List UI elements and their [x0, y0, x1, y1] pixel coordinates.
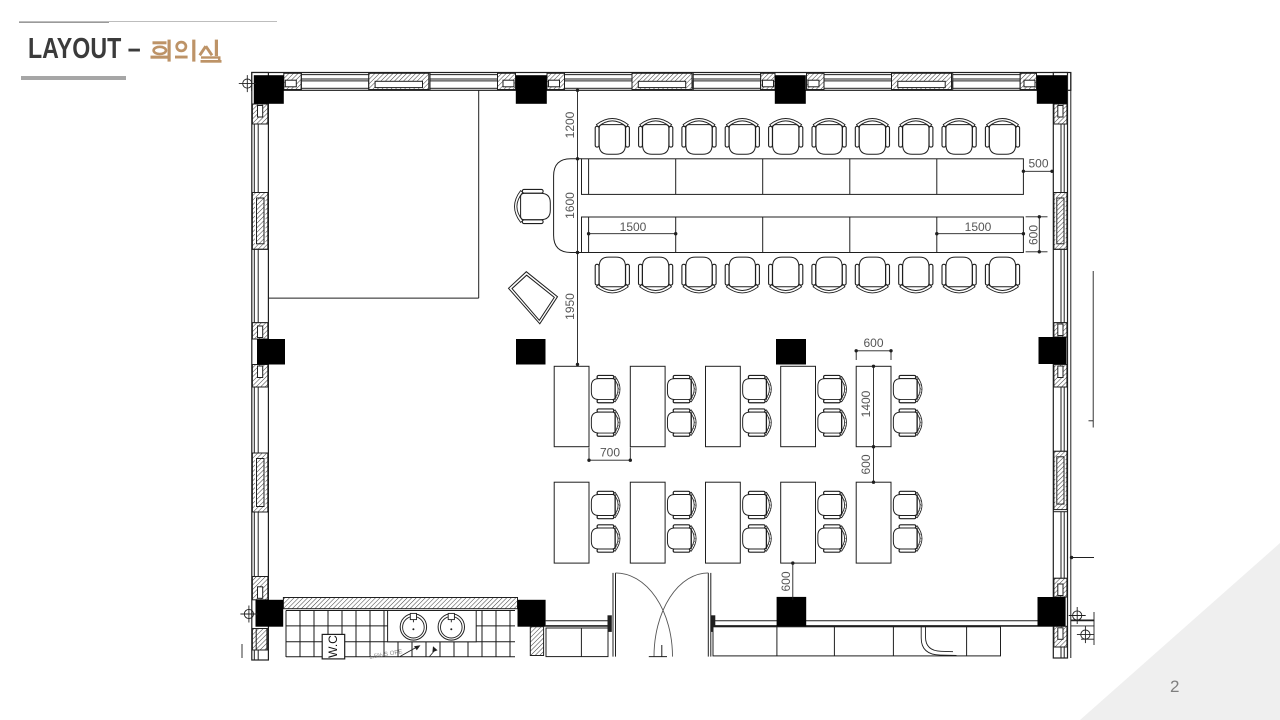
svg-text:1.5% S OPE: 1.5% S OPE	[369, 649, 403, 661]
svg-text:600: 600	[863, 336, 883, 350]
svg-text:1400: 1400	[859, 390, 873, 417]
svg-text:600: 600	[1027, 225, 1041, 245]
svg-text:1600: 1600	[563, 192, 577, 219]
svg-text:500: 500	[1028, 157, 1048, 171]
svg-text:600: 600	[779, 571, 793, 591]
svg-text:1950: 1950	[563, 293, 577, 320]
svg-text:W.C: W.C	[326, 635, 340, 658]
svg-text:1200: 1200	[563, 111, 577, 138]
svg-text:1500: 1500	[620, 220, 647, 234]
svg-text:1500: 1500	[965, 220, 992, 234]
svg-text:600: 600	[859, 454, 873, 474]
svg-text:700: 700	[600, 446, 620, 460]
